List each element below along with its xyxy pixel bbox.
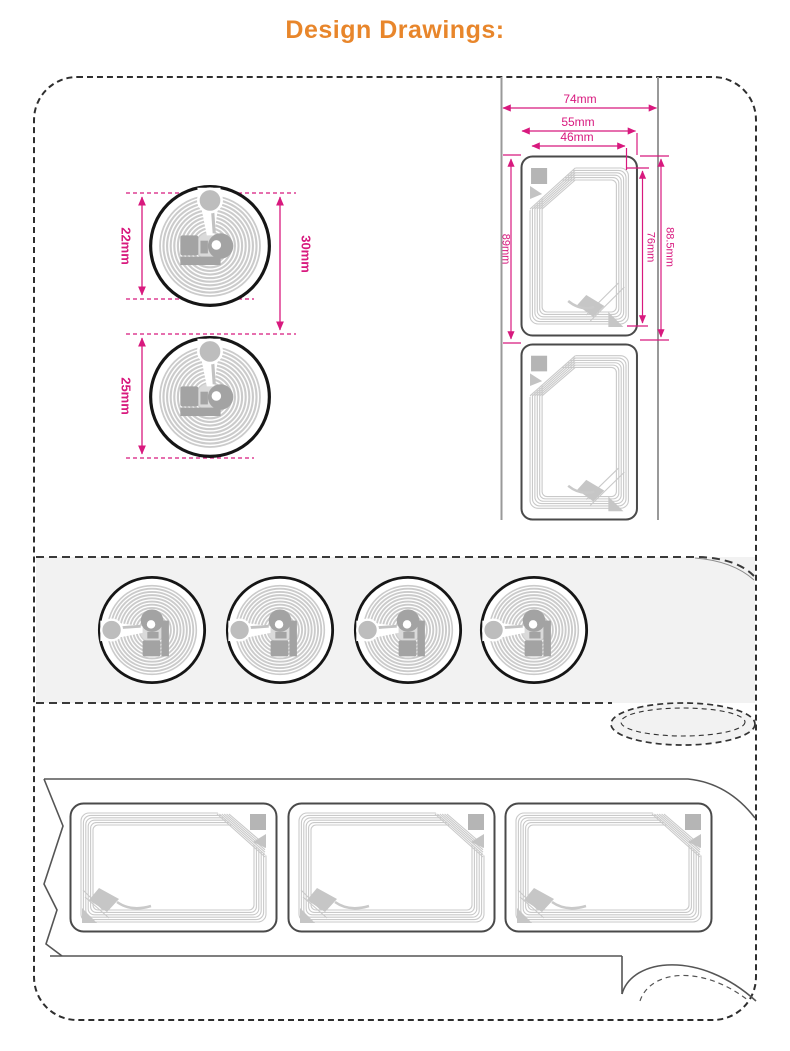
rect-nfc-label-bottom bbox=[522, 344, 637, 519]
round-nfc-tag-25mm bbox=[151, 338, 270, 457]
dim-label-antenna-height: 76mm bbox=[645, 232, 656, 263]
dim-label-label-pitch: 88.5mm bbox=[664, 227, 675, 267]
rect-label-roll-strip bbox=[44, 779, 756, 1001]
dim-label-coil-diameter: 22mm bbox=[120, 227, 133, 265]
design-drawings-sheet: Design Drawings: bbox=[0, 0, 790, 1051]
dim-label-label-width: 55mm bbox=[561, 116, 594, 128]
roll-curl-end bbox=[622, 956, 756, 1001]
dim-label-antenna-width: 46mm bbox=[560, 131, 593, 143]
dim-label-round-diameter: 25mm bbox=[120, 377, 133, 415]
round-nfc-tag-22mm bbox=[151, 187, 270, 306]
dim-label-round-pitch: 30mm bbox=[300, 235, 313, 273]
round-label-roll-strip bbox=[36, 557, 755, 745]
dim-label-label-height: 89mm bbox=[500, 234, 511, 265]
design-drawing-canvas bbox=[0, 0, 790, 1051]
rect-nfc-label-top bbox=[522, 157, 637, 336]
dim-label-tape-width: 74mm bbox=[563, 93, 596, 105]
